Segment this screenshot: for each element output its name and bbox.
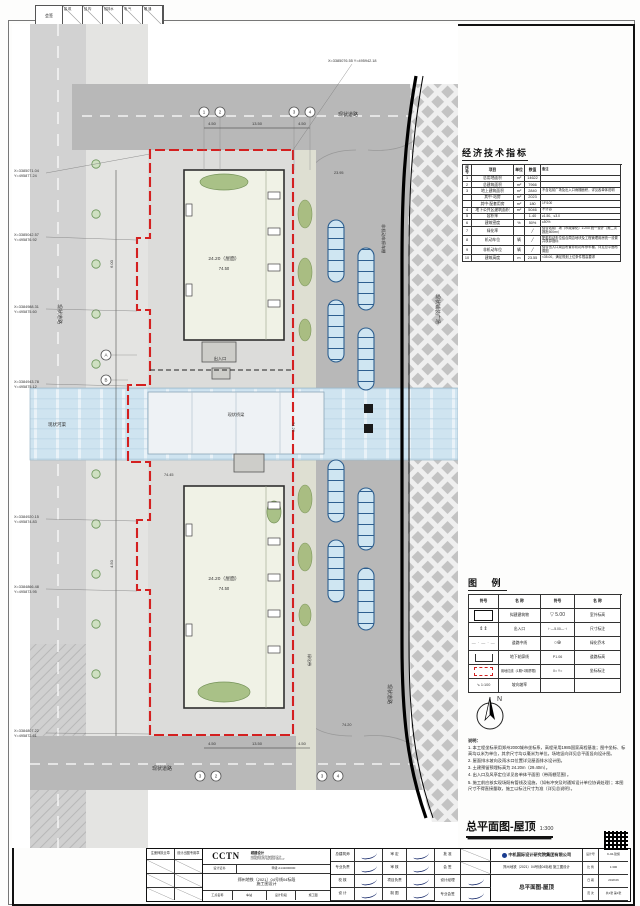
note-item: 3. 土建预留预埋标高为 24.20m（29.40m）。 [468, 765, 626, 771]
stamp-table: 注册师执业章 设计出图专用章 [147, 849, 203, 901]
note-item: 4. 出入口及风亭定位详见各单体平面图（带雨棚范围）。 [468, 772, 626, 778]
svg-text:74.45: 74.45 [164, 473, 174, 477]
signature-strip-cell: 电 气 [123, 6, 143, 25]
company-name: 中机国际设计研究院集团有限公司 [491, 849, 582, 861]
notes-header: 说明： [468, 738, 626, 744]
road-level-symbol: P1.06 [541, 651, 575, 665]
roof-green-patch [200, 174, 248, 190]
building-symbol [469, 609, 499, 623]
drawing-scale: 1:300 [540, 826, 554, 832]
svg-text:74.50: 74.50 [219, 586, 230, 591]
north-label: N [497, 696, 502, 703]
signature-mark [407, 875, 435, 887]
cctn-company-en: CHINA CCTN DESIGN GROUP [251, 859, 285, 862]
site-plan: 12 34 32 34 AB 4.50 13.50 4.50 4.50 13.5… [12, 24, 458, 848]
svg-text:Y=495877.24: Y=495877.24 [14, 174, 37, 178]
svg-text:现状道路: 现状道路 [56, 304, 63, 324]
right-road [300, 150, 410, 790]
entrance-symbol: ⇕⇕ [469, 623, 499, 637]
svg-text:24.20（屋面）: 24.20（屋面） [208, 576, 239, 582]
svg-text:Y=495875.12: Y=495875.12 [14, 385, 37, 389]
station-roof-north [184, 170, 284, 340]
svg-text:Y=495876.92: Y=495876.92 [14, 238, 37, 242]
signature-strip-title: 会签 [36, 6, 63, 25]
dimension-symbol: ⊢—5.00—⊣ [541, 623, 575, 637]
drawing-sheet: 会签 建 筑结 构给排水电 气暖 通 [0, 0, 640, 906]
cctn-logo: CCTN [203, 849, 249, 864]
signature-mark [407, 862, 435, 874]
signature-strip-cell: 建 筑 [63, 6, 83, 25]
svg-text:A: A [104, 353, 107, 358]
svg-text:23.95: 23.95 [334, 171, 344, 175]
signature-strip: 会签 建 筑结 构给排水电 气暖 通 [35, 5, 164, 26]
svg-text:4.50: 4.50 [298, 121, 307, 126]
centerline-symbol: — · — · — [469, 637, 499, 651]
signature-grid: 总建筑师 专业负责 校 核 设 计 [331, 849, 491, 901]
signature-mark [355, 849, 383, 861]
svg-text:6.00: 6.00 [109, 259, 114, 268]
svg-text:X=3384943.78: X=3384943.78 [14, 380, 39, 384]
indicators-row: 10 建筑高度 m 23.55 <35.00，满足规划上位条件限高要求 [463, 255, 622, 261]
red-line-symbol [469, 665, 499, 679]
signature-mark [407, 888, 435, 900]
svg-text:X=3385076.55 Y=495942.18: X=3385076.55 Y=495942.18 [328, 59, 377, 63]
svg-text:X=3384807.22: X=3384807.22 [14, 729, 39, 733]
svg-text:4.50: 4.50 [208, 121, 217, 126]
drawing-title: 总平面图-屋顶1:300 [466, 818, 553, 838]
svg-text:B: B [104, 378, 107, 383]
legend-table: 符号 名 称 符号 名 称 拟建建筑物 ▽ 5.00 室外标高 ⇕⇕ 出入口 ⊢… [468, 594, 622, 693]
notes-block: 说明： 1. 本工程坐标采用郑州2000城市坐标系，高程采用1985国家高程基准… [468, 738, 626, 793]
signature-mark [355, 888, 383, 900]
figure-name: 总平面图-屋顶 [491, 875, 582, 901]
svg-text:4.50: 4.50 [208, 741, 217, 746]
coordinate-leader-symbol: X= Y= [541, 665, 575, 679]
signature-strip-cell: 给排水 [103, 6, 123, 25]
svg-text:现状桥梁: 现状桥梁 [228, 411, 246, 418]
company-logo-icon [502, 853, 507, 858]
company-block: 中机国际设计研究院集团有限公司 郑州地铁（2021）04号线04标段 施工图设计… [491, 849, 628, 901]
north-arrow: N [470, 688, 512, 736]
signature-mark [355, 862, 383, 874]
svg-text:X=3385071.04: X=3385071.04 [14, 169, 39, 173]
cert-number: 甲级 A141000000 [237, 865, 330, 873]
note-item: 2. 屋面排水坡向及雨水口位置详见屋面排水设计图。 [468, 758, 626, 764]
roof-green-patch [198, 682, 250, 702]
tree-symbol: ○⊕ [541, 637, 575, 651]
top-road [72, 84, 458, 150]
svg-text:绿化带: 绿化带 [307, 654, 313, 666]
note-item: 1. 本工程坐标采用郑州2000城市坐标系，高程采用1985国家高程基准；图中坐… [468, 745, 626, 757]
svg-text:Y=495872.61: Y=495872.61 [14, 734, 37, 738]
indicators-header-row: 序号 项目 单位 数值 备注 [463, 165, 622, 176]
svg-text:Y=495875.60: Y=495875.60 [14, 310, 37, 314]
design-firm-block: CCTN 城建设计 中国城建院咨询规划设计 CHINA CCTN DESIGN … [203, 849, 331, 901]
svg-text:13.50: 13.50 [252, 741, 263, 746]
svg-text:X=3384920.15: X=3384920.15 [14, 515, 39, 519]
green-median-strip [296, 150, 316, 790]
signature-mark [461, 875, 491, 887]
svg-text:74.50: 74.50 [219, 266, 230, 271]
indicators-row: 9 非机动车位 辆 ╱ 结合出入口周边布置非机动车停车棚，详见总平面布置图 [463, 246, 622, 256]
svg-text:74.20: 74.20 [291, 422, 296, 433]
svg-text:现状道路: 现状道路 [338, 111, 358, 118]
svg-text:74.20: 74.20 [342, 723, 352, 727]
svg-text:13.50: 13.50 [252, 121, 263, 126]
svg-text:4.50: 4.50 [298, 741, 307, 746]
note-item: 5. 施工前应核实现场既有管线及设施，（如有冲突及时通知设计单位协调处理）；本图… [468, 780, 626, 792]
svg-text:非机动车停车棚: 非机动车停车棚 [380, 224, 387, 253]
signature-strip-cell: 结 构 [83, 6, 103, 25]
project-name: 郑州地铁（2021）04号线04标段 施工图设计 [203, 874, 330, 890]
level-symbol: ▽ 5.00 [541, 609, 575, 623]
svg-text:24.20（屋面）: 24.20（屋面） [208, 256, 239, 262]
title-block: 注册师执业章 设计出图专用章 CCTN 城建设计 中国城建院咨询规划设计 CHI… [146, 848, 631, 902]
station-roof-south [184, 486, 284, 708]
svg-text:现状道路: 现状道路 [152, 765, 172, 772]
bottom-road [30, 736, 458, 790]
qr-stamp [604, 831, 628, 850]
svg-text:Y=495873.95: Y=495873.95 [14, 590, 37, 594]
svg-text:X=3384988.31: X=3384988.31 [14, 305, 39, 309]
underground-outline-symbol [469, 651, 499, 665]
svg-text:现状道路: 现状道路 [386, 684, 393, 704]
company-project: 郑州地铁（2021）04号线04标段 施工图设计 [491, 862, 582, 874]
signature-strip-cell: 暖 通 [143, 6, 163, 25]
signature-mark [461, 888, 491, 901]
indicators-row: 7 绿化率 ╱ 结合站前广场（市政绿化）1:200 统一设计（需二次报批500m… [463, 227, 622, 237]
signature-mark [407, 849, 435, 861]
indicators-table: 序号 项目 单位 数值 备注 1 总用地面积 m² 14622 2 总建筑面积 [462, 164, 622, 262]
svg-text:现状铺装广场: 现状铺装广场 [434, 294, 441, 324]
svg-text:4.50: 4.50 [109, 559, 114, 568]
cert-label: 设计证书 [203, 865, 237, 873]
svg-text:X=3384866.48: X=3384866.48 [14, 585, 39, 589]
svg-text:X=3385042.57: X=3385042.57 [14, 233, 39, 237]
legend-title: 图 例 [468, 576, 507, 591]
svg-text:Y=495874.83: Y=495874.83 [14, 520, 37, 524]
indicators-title: 经济技术指标 [462, 146, 528, 161]
svg-text:出入口: 出入口 [214, 355, 227, 362]
svg-text:现状河渠: 现状河渠 [48, 421, 66, 428]
signature-mark [355, 875, 383, 887]
